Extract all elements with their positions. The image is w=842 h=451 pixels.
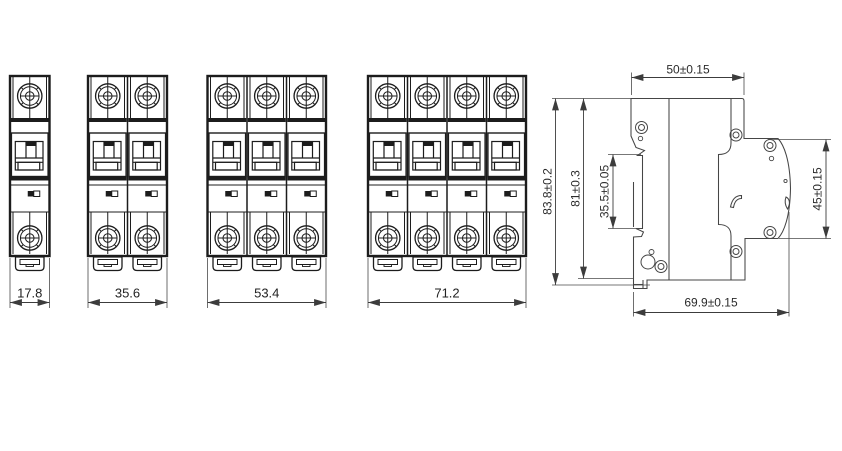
mcb-outline-drawing: 17.8 35.6 53.4 bbox=[0, 0, 842, 451]
dimension-front-face-height: 45±0.15 bbox=[768, 140, 831, 239]
breaker-module bbox=[408, 76, 448, 271]
front-view-4-pole: 71.2 bbox=[368, 76, 526, 308]
breaker-module bbox=[10, 76, 50, 271]
breaker-module bbox=[368, 76, 408, 271]
dimension-label-top-width: 50±0.15 bbox=[666, 63, 710, 77]
front-view-1-pole: 17.8 bbox=[10, 76, 50, 308]
breaker-module bbox=[208, 76, 248, 271]
side-view: 50±0.15 83.8±0.2 81±0.3 35.5±0.05 4 bbox=[541, 63, 832, 317]
dimension-label-body-height: 81±0.3 bbox=[569, 170, 583, 207]
front-view-3-pole: 53.4 bbox=[208, 76, 327, 308]
technical-drawing-canvas: 17.8 35.6 53.4 bbox=[0, 0, 842, 451]
width-dimension-3-pole: 53.4 bbox=[208, 258, 327, 308]
dimension-label-2-pole-width: 35.6 bbox=[115, 286, 140, 301]
dimension-top-width: 50±0.15 bbox=[632, 63, 745, 96]
breaker-module bbox=[447, 76, 487, 271]
breaker-module bbox=[88, 76, 128, 271]
width-dimension-2-pole: 35.6 bbox=[88, 258, 167, 308]
front-view-2-pole: 35.6 bbox=[88, 76, 167, 308]
dimension-din-slot-height: 35.5±0.05 bbox=[598, 155, 642, 229]
dimension-label-overall-height: 83.8±0.2 bbox=[541, 168, 555, 215]
breaker-module bbox=[247, 76, 287, 271]
dimension-label-overall-depth: 69.9±0.15 bbox=[684, 296, 738, 310]
breaker-module bbox=[487, 76, 527, 271]
dimension-label-1-pole-width: 17.8 bbox=[17, 286, 42, 301]
dimension-label-din-slot-height: 35.5±0.05 bbox=[598, 165, 612, 219]
dimension-label-4-pole-width: 71.2 bbox=[434, 286, 459, 301]
dimension-label-3-pole-width: 53.4 bbox=[254, 286, 279, 301]
breaker-module bbox=[128, 76, 168, 271]
dimension-label-front-face-height: 45±0.15 bbox=[811, 167, 825, 211]
breaker-module bbox=[287, 76, 327, 271]
